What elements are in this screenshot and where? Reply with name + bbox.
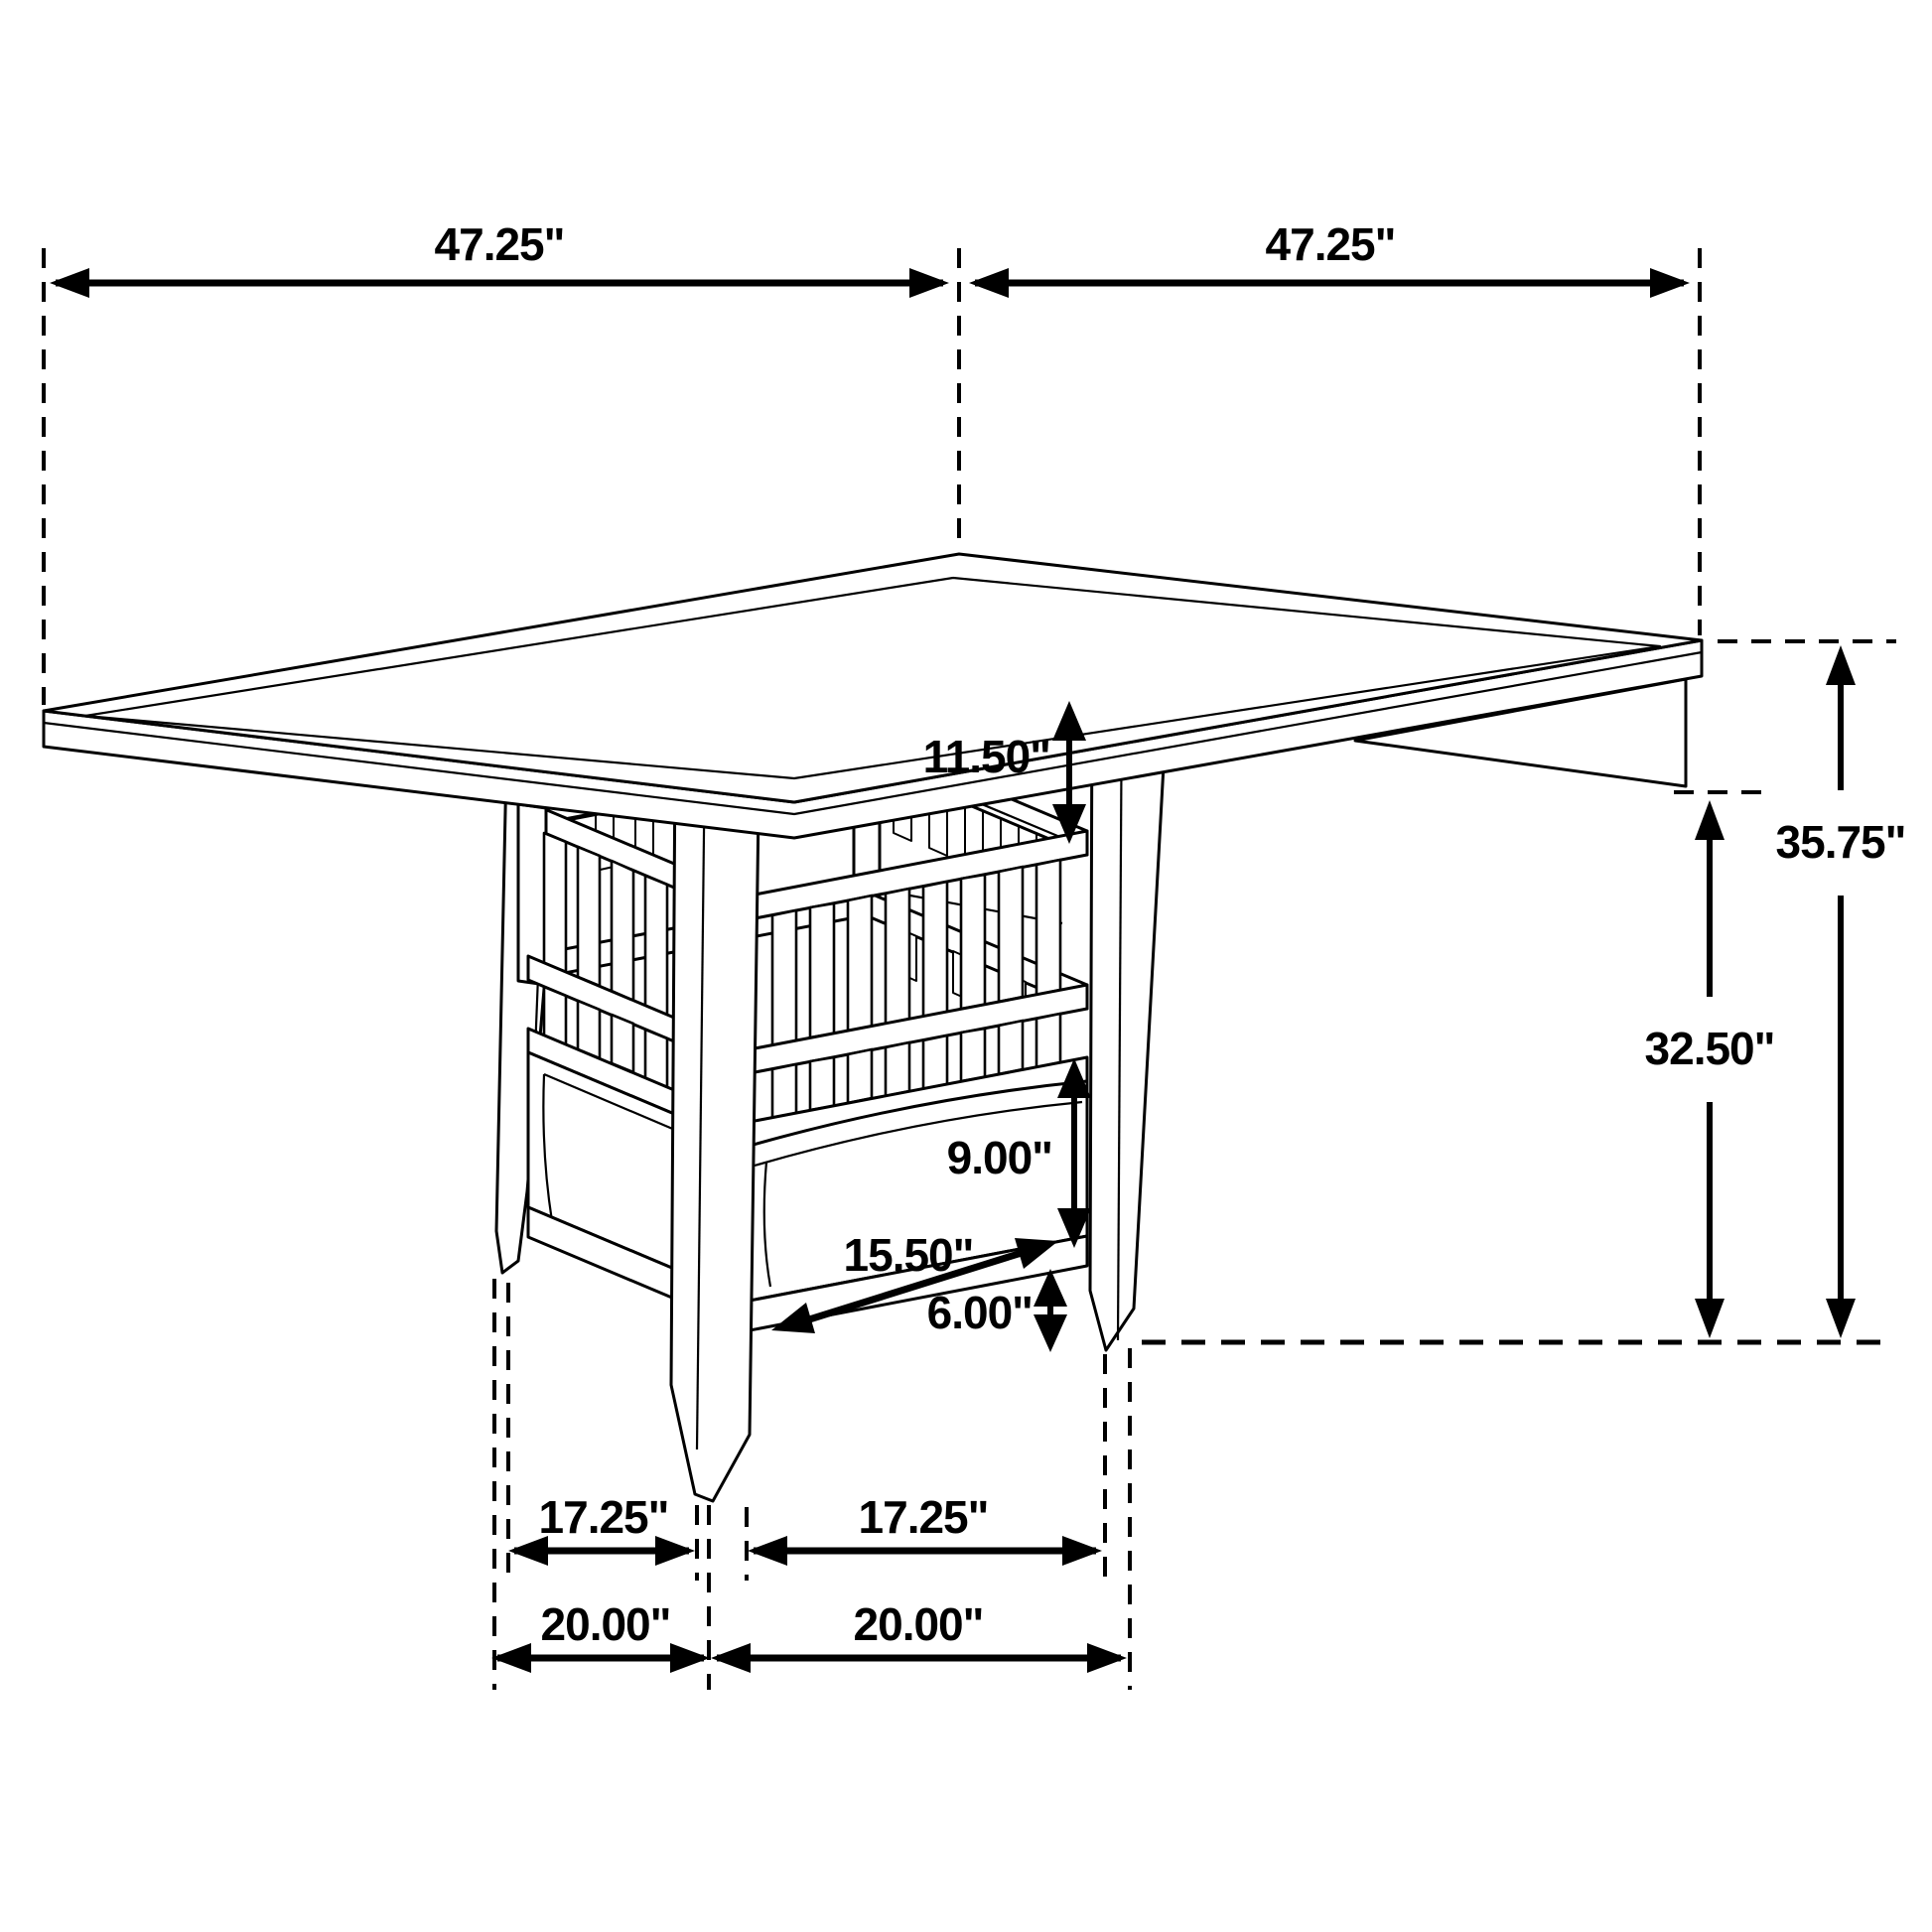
dim-base-span-left: 20.00" (491, 1598, 710, 1673)
dim-label-top-width-left: 47.25" (435, 218, 565, 270)
diagram-canvas: 47.25" 47.25" 35.75" 32.50" 11.50" (0, 0, 1932, 1932)
dim-label-leg-span-right: 17.25" (859, 1491, 989, 1543)
dim-leg-span-left: 17.25" (508, 1491, 695, 1566)
dim-label-base-span-right: 20.00" (854, 1598, 984, 1650)
dim-label-basket-depth: 11.50" (923, 731, 1050, 782)
dim-label-base-span-left: 20.00" (541, 1598, 671, 1650)
dim-label-drawer-height: 9.00" (947, 1132, 1052, 1183)
dim-label-leg-span-left: 17.25" (539, 1491, 669, 1543)
front-leg (671, 739, 759, 1501)
table-drawing (44, 554, 1702, 1501)
dim-apron-height: 32.50" (1645, 792, 1775, 1338)
dim-label-overall-height: 35.75" (1776, 816, 1906, 868)
dim-label-top-width-right: 47.25" (1266, 218, 1396, 270)
dim-label-drawer-width: 15.50" (844, 1229, 974, 1281)
dim-leg-span-right: 17.25" (748, 1491, 1102, 1566)
dim-label-apron-height: 32.50" (1645, 1023, 1775, 1074)
tabletop (44, 554, 1702, 838)
dim-overall-height: 35.75" (1718, 641, 1905, 1338)
table-dimension-diagram: 47.25" 47.25" 35.75" 32.50" 11.50" (0, 0, 1932, 1932)
dim-label-base-clearance: 6.00" (927, 1287, 1033, 1338)
dim-base-span-right: 20.00" (711, 1598, 1127, 1673)
